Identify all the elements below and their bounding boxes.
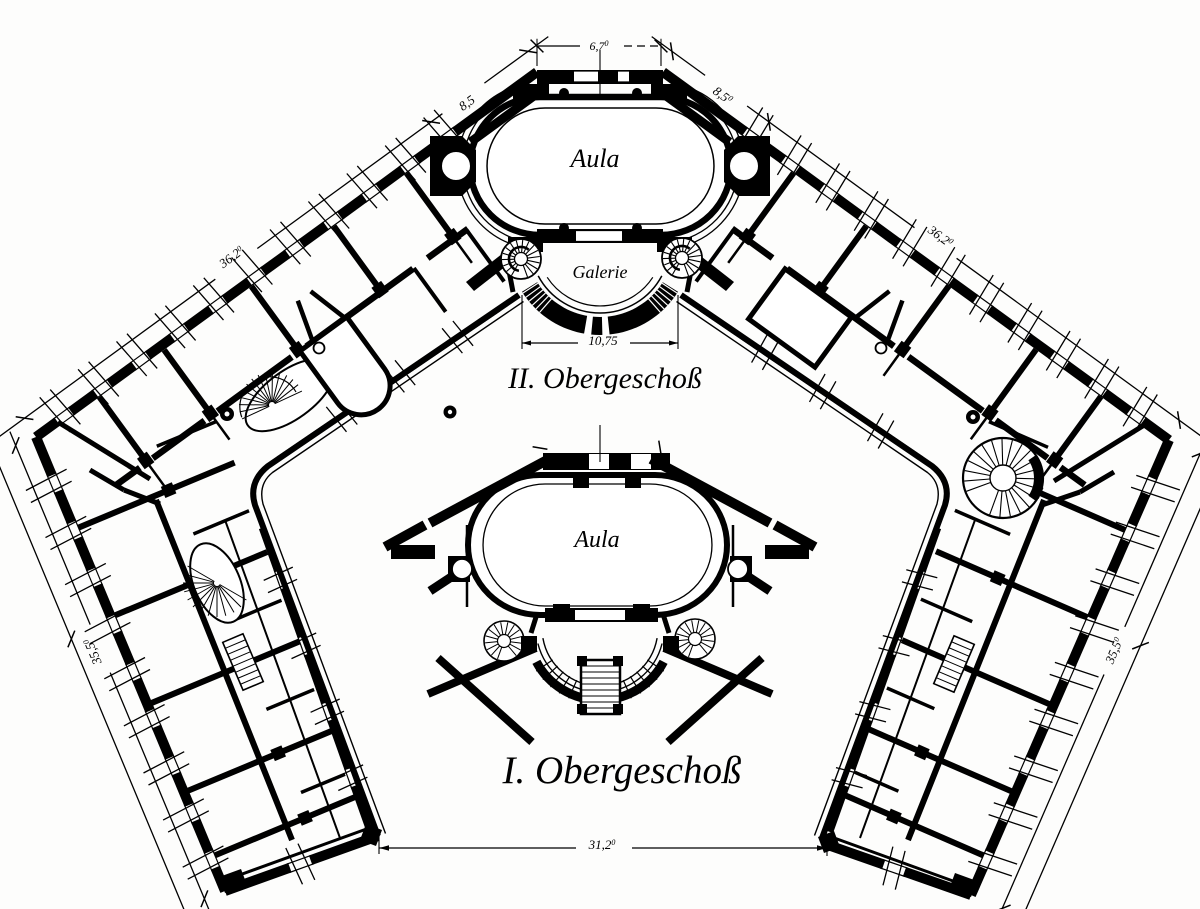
svg-text:Galerie: Galerie xyxy=(573,262,628,282)
svg-text:I. Obergeschoß: I. Obergeschoß xyxy=(502,749,742,792)
svg-text:Aula: Aula xyxy=(572,527,619,553)
svg-text:10,75: 10,75 xyxy=(588,333,618,348)
svg-text:Aula: Aula xyxy=(568,144,619,173)
svg-text:II. Obergeschoß: II. Obergeschoß xyxy=(507,362,702,395)
svg-text:31,20: 31,20 xyxy=(588,837,616,852)
